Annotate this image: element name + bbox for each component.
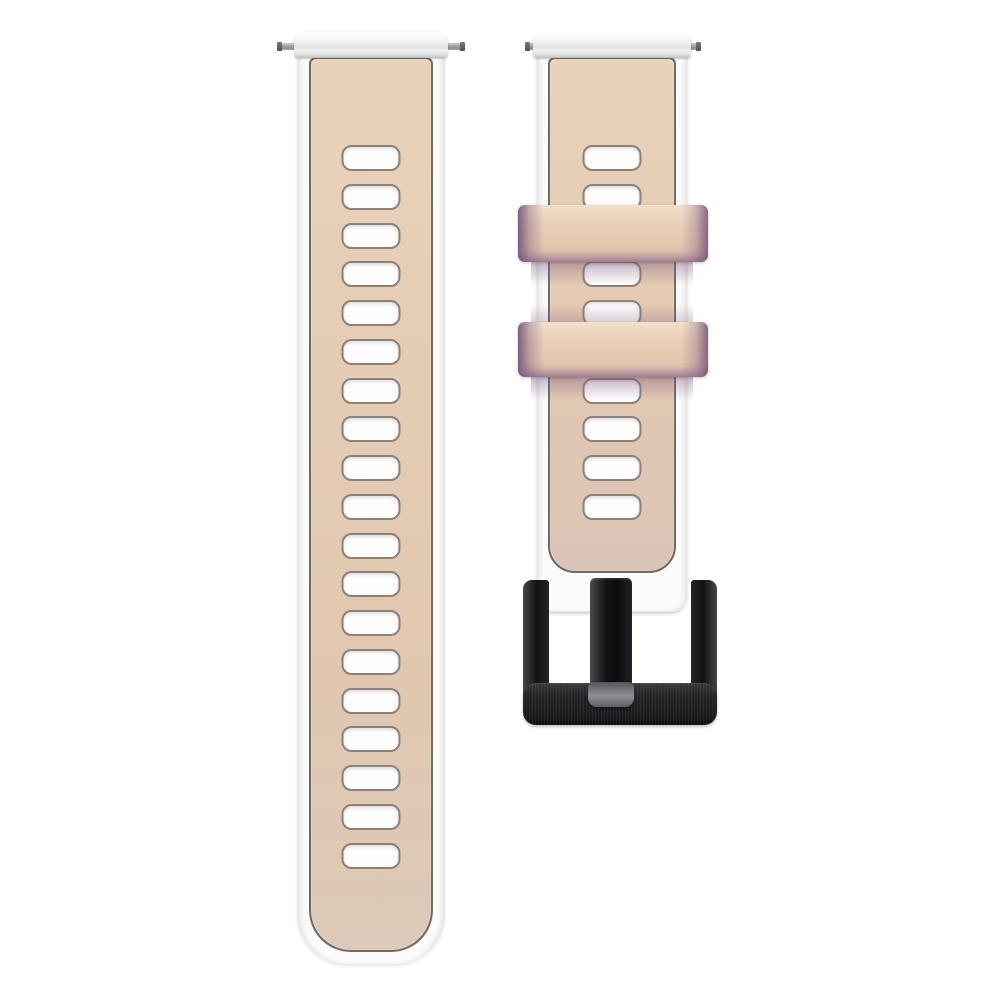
strap-adjustment-hole (342, 494, 401, 520)
strap-adjustment-hole (583, 494, 642, 520)
product-photo (0, 0, 1000, 1000)
strap-adjustment-hole (342, 261, 401, 287)
keeper-shadow (531, 375, 693, 400)
strap-adjustment-hole (583, 455, 642, 481)
strap-adjustment-hole (342, 145, 401, 171)
strap-top-cap (294, 32, 448, 58)
strap-adjustment-hole (342, 804, 401, 830)
strap-adjustment-hole (342, 610, 401, 636)
keeper-loop-lower (518, 322, 708, 377)
strap-adjustment-hole (342, 184, 401, 210)
strap-adjustment-hole (342, 843, 401, 869)
strap-adjustment-hole (342, 455, 401, 481)
strap-adjustment-hole (342, 649, 401, 675)
strap-adjustment-hole (342, 378, 401, 404)
strap-adjustment-hole (342, 688, 401, 714)
watch-band-long-strap (297, 32, 445, 965)
strap-adjustment-hole (342, 339, 401, 365)
strap-adjustment-hole (342, 571, 401, 597)
strap-adjustment-hole (342, 300, 401, 326)
strap-adjustment-hole (583, 145, 642, 171)
strap-adjustment-hole (342, 533, 401, 559)
strap-beige-face (309, 57, 433, 952)
strap-adjustment-hole (342, 416, 401, 442)
strap-adjustment-hole (583, 416, 642, 442)
strap-adjustment-hole (342, 223, 401, 249)
watch-band-buckle-strap (536, 32, 688, 725)
buckle-tongue-tip (588, 682, 634, 707)
strap-adjustment-hole (342, 726, 401, 752)
strap-adjustment-hole (342, 765, 401, 791)
strap-top-cap (533, 32, 691, 58)
keeper-loop-upper (518, 205, 708, 262)
keeper-shadow (531, 260, 693, 285)
